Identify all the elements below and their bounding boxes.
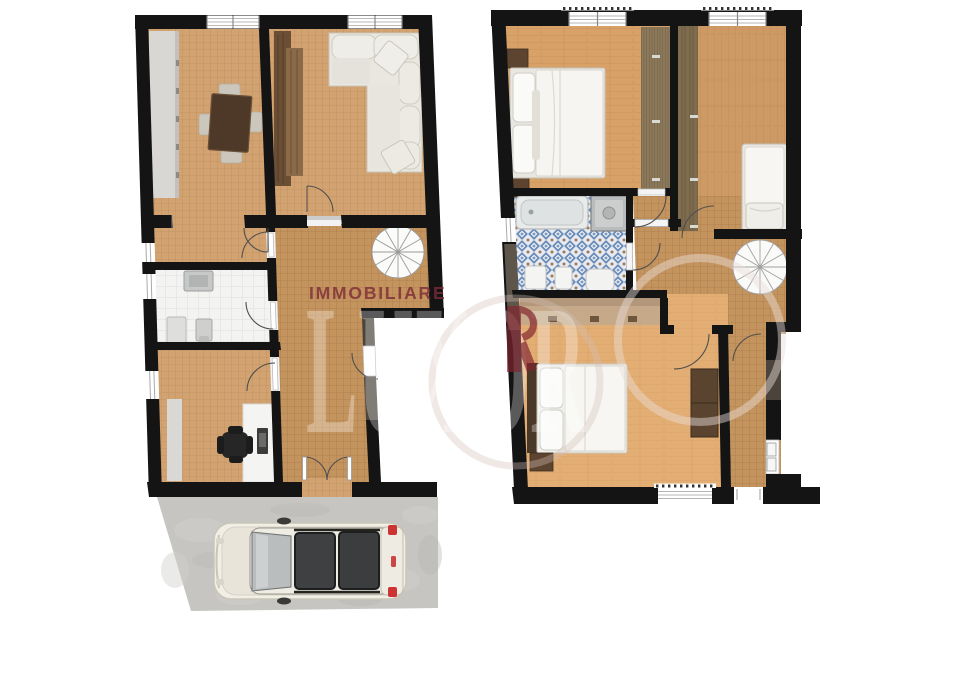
svg-text:LUXOR: LUXOR bbox=[306, 268, 587, 473]
